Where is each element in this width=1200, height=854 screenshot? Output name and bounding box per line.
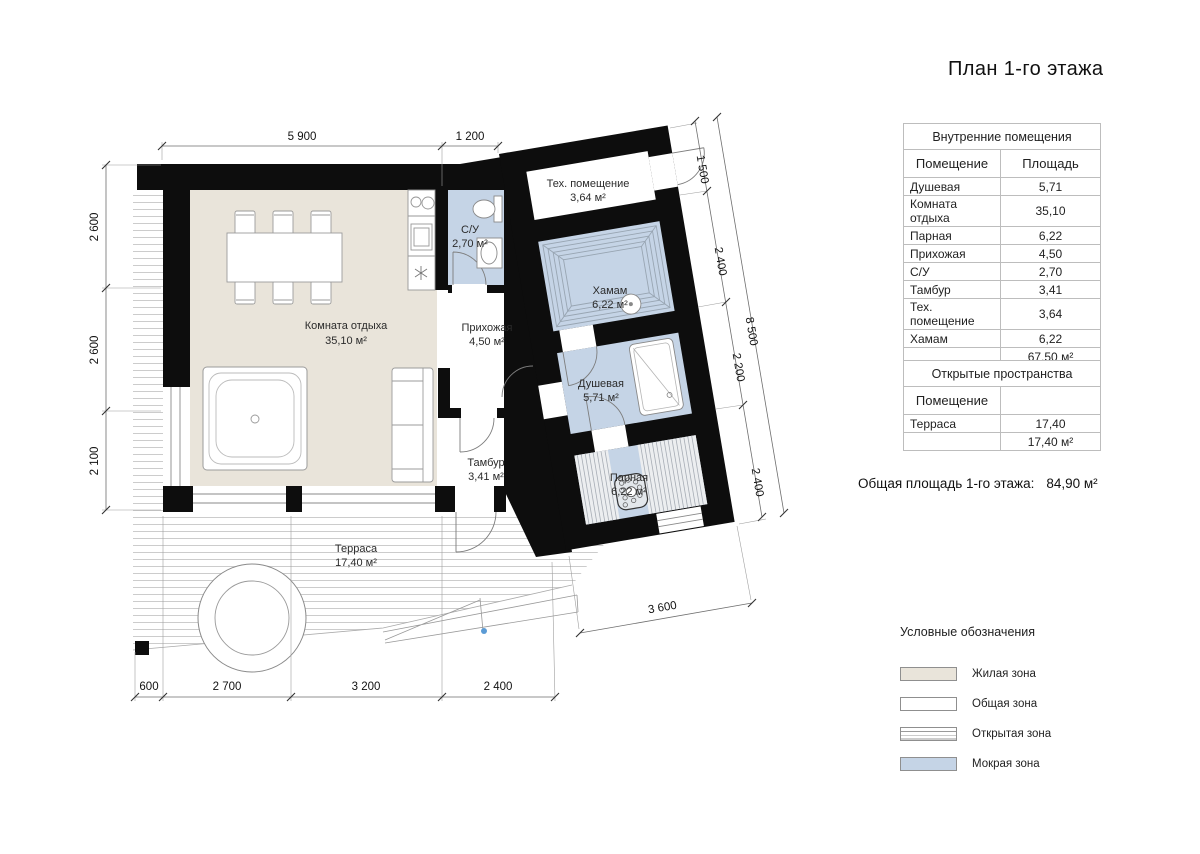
svg-text:3,64 м²: 3,64 м² [570,192,606,204]
common-zone-swatch [900,697,957,711]
svg-text:4,50 м²: 4,50 м² [469,336,505,348]
table-header-row: Помещение Площадь [904,150,1101,178]
floor-plan: Комната отдыха 35,10 м² С/У 2,70 м² Прих… [0,0,860,849]
page-title: План 1-го этажа [948,58,1148,81]
open-spaces-table: Открытые пространства Помещение Терраса1… [903,360,1101,451]
kitchen-counter [408,190,435,290]
legend-item-open: Открытая зона [900,719,1051,749]
floor-plan-svg: Комната отдыха 35,10 м² С/У 2,70 м² Прих… [0,0,860,849]
svg-text:2,70 м²: 2,70 м² [452,238,488,250]
table-header-row: Помещение [904,387,1101,415]
dim-right-total: 8 500 [743,316,760,346]
table-row: Комната отдыха35,10 [904,196,1101,227]
total-area-value: 84,90 м² [1046,476,1097,491]
svg-text:3,41 м²: 3,41 м² [468,471,504,483]
kitchen-sink-icon [411,197,421,207]
label-tech: Тех. помещение [547,178,630,190]
lounge-hot-tub [203,367,307,470]
legend-item-common: Общая зона [900,689,1051,719]
col-header-area: Площадь [1001,150,1101,178]
svg-text:17,40 м²: 17,40 м² [335,557,377,569]
dim-right-1: 2 400 [712,246,729,276]
dim-bottom-3: 2 400 [484,681,513,693]
dining-set [227,211,342,304]
col-header-area [1001,387,1101,415]
total-area-line: Общая площадь 1-го этажа:84,90 м² [858,476,1098,491]
dim-left-1: 2 600 [89,336,101,365]
table-caption: Открытые пространства [904,361,1101,387]
open-zone-swatch [900,727,957,741]
svg-text:6,22 м²: 6,22 м² [611,486,647,498]
dim-top-1: 1 200 [456,131,485,143]
legend-title: Условные обозначения [900,625,1051,639]
table-row: С/У2,70 [904,263,1101,281]
col-header-room: Помещение [904,150,1001,178]
svg-text:6,22 м²: 6,22 м² [592,299,628,311]
table-caption-row: Внутренние помещения [904,124,1101,150]
label-terrace: Терраса [335,543,378,555]
table-row: Терраса17,40 [904,415,1101,433]
label-steam: Парная [610,472,648,484]
internal-rooms-table: Внутренние помещения Помещение Площадь Д… [903,123,1101,366]
open-total: 17,40 м² [1001,433,1101,451]
terrace-hot-tub [198,564,306,672]
total-area-label: Общая площадь 1-го этажа: [858,476,1034,491]
svg-text:5,71 м²: 5,71 м² [583,392,619,404]
wet-zone-swatch [900,757,957,771]
svg-text:35,10 м²: 35,10 м² [325,335,367,347]
legend-item-living: Жилая зона [900,659,1051,689]
dim-right-2: 2 200 [730,352,747,382]
table-row: Тех. помещение3,64 [904,299,1101,330]
label-hallway: Прихожая [462,322,513,334]
label-tambour: Тамбур [467,457,504,469]
label-lounge: Комната отдыха [305,320,388,332]
dim-right-0: 1 500 [694,154,711,184]
table-caption-row: Открытые пространства [904,361,1101,387]
dim-bottom-0: 600 [139,681,158,693]
table-row: Парная6,22 [904,227,1101,245]
table-caption: Внутренние помещения [904,124,1101,150]
dining-table [227,233,342,282]
dim-bottom-2: 3 200 [352,681,381,693]
dim-left-2: 2 100 [89,447,101,476]
label-shower: Душевая [578,378,624,390]
table-row: Душевая5,71 [904,178,1101,196]
dim-left-0: 2 600 [89,213,101,242]
legend: Условные обозначения Жилая зона Общая зо… [900,625,1051,779]
sofa [392,368,433,482]
ramp-dot [481,628,487,634]
living-zone-swatch [900,667,957,681]
legend-item-wet: Мокрая зона [900,749,1051,779]
table-row: Хамам6,22 [904,330,1101,348]
table-row: Тамбур3,41 [904,281,1101,299]
dim-wing-bottom: 3 600 [647,600,677,617]
dim-top-0: 5 900 [288,131,317,143]
col-header-room: Помещение [904,387,1001,415]
table-row: Прихожая4,50 [904,245,1101,263]
label-hamam: Хамам [593,285,628,297]
dim-right-3: 2 400 [749,467,766,497]
main-block [137,156,572,557]
label-wc: С/У [461,224,480,236]
table-total-row: 17,40 м² [904,433,1101,451]
dim-bottom-1: 2 700 [213,681,242,693]
